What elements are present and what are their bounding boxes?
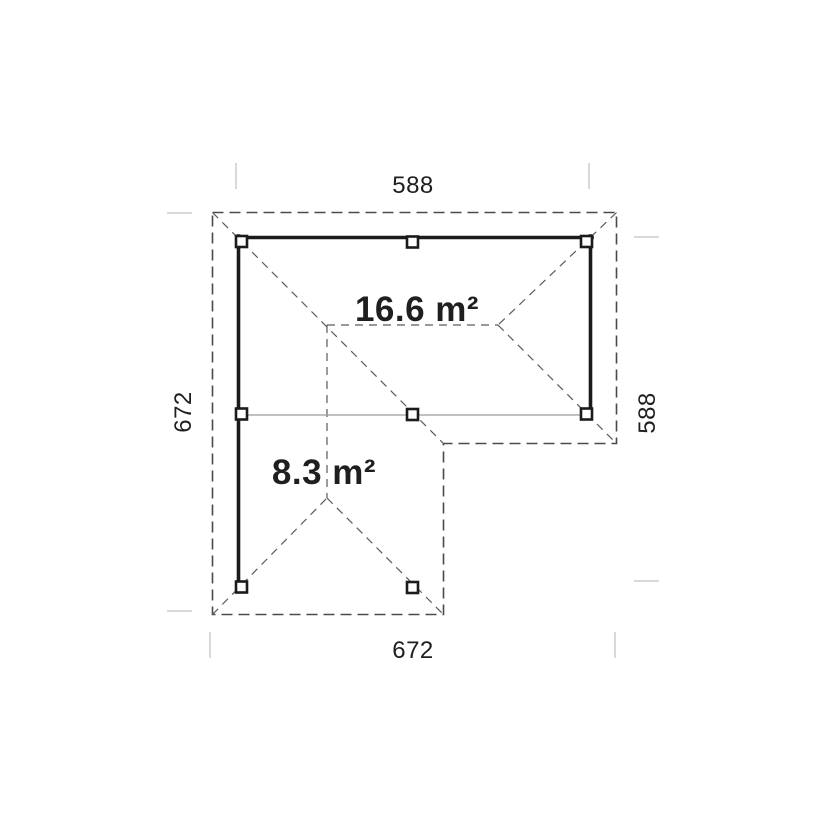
roof-hip-line (498, 213, 617, 326)
dimension-label-right: 588 (634, 392, 661, 434)
dimension-label-bottom: 672 (392, 637, 434, 664)
floor-plan-drawing: 588 672 672 588 16.6 m² 8.3 m² (0, 0, 828, 828)
roof-hip-line (213, 498, 328, 615)
post-marker-top-middle (407, 237, 418, 248)
area-label-main: 16.6 m² (355, 290, 479, 329)
post-marker-bottom-left (236, 582, 247, 593)
post-marker-top-left (236, 236, 247, 247)
post-marker-top-right (581, 236, 592, 247)
dimension-label-left: 672 (170, 391, 197, 433)
floor-plan-diagram: 588 672 672 588 16.6 m² 8.3 m² (0, 0, 828, 828)
post-marker-mid-left (236, 409, 247, 420)
post-marker-mid-right (581, 409, 592, 420)
post-marker-mid-center (407, 409, 418, 420)
roof-hip-line (327, 498, 444, 615)
area-label-annex: 8.3 m² (272, 453, 376, 492)
roof-hip-line (498, 325, 617, 444)
post-marker-bottom-middle (407, 582, 418, 593)
dimension-label-top: 588 (392, 172, 434, 199)
